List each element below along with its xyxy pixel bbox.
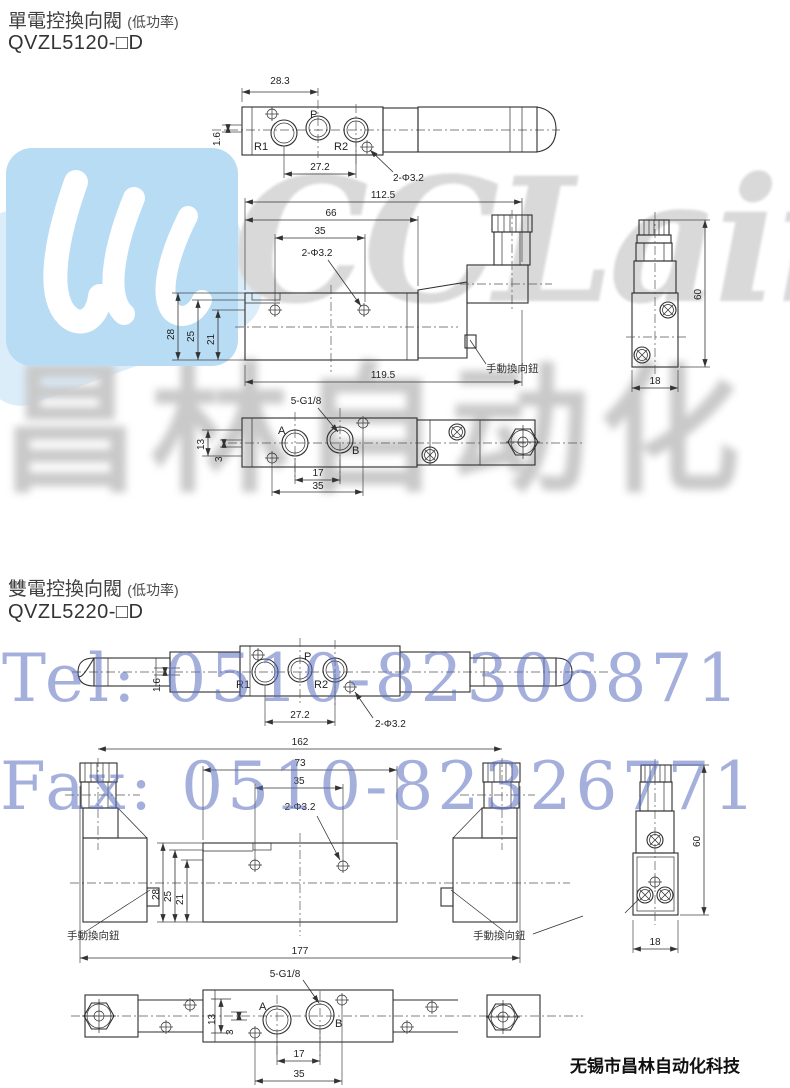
section1-model-number: QVZL5120-□D: [8, 32, 143, 55]
screw-icon: [637, 887, 653, 903]
dim-17: 17: [293, 1049, 305, 1060]
dim-35: 35: [314, 226, 326, 237]
valve2-top-view-drawing: 1.6 27.2 2-Φ3.2 R1 P R2: [68, 630, 623, 735]
dim-35: 35: [293, 1069, 305, 1080]
section1-subtitle: (低功率): [127, 14, 178, 30]
screw-icon: [634, 347, 650, 363]
dim-35: 35: [312, 481, 324, 492]
dim-1-6: 1.6: [152, 678, 163, 692]
dim-25: 25: [186, 330, 197, 342]
section1-title-text: 單電控換向閥: [8, 11, 122, 32]
dim-177: 177: [292, 946, 309, 957]
valve1-top-view-drawing: 28.3 1.6 27.2 2-Φ3.2 R1 P R2: [210, 66, 565, 191]
dim-66: 66: [325, 208, 337, 219]
section2-title-text: 雙電控換向閥: [8, 579, 122, 600]
screw-icon: [660, 302, 676, 318]
valve1-bottom-view-drawing: 5-G1/8 A B 13 3 17 35: [178, 392, 598, 522]
dim-119-5: 119.5: [371, 370, 396, 381]
port-p-label: P: [304, 651, 311, 663]
section2-title: 雙電控換向閥 (低功率): [8, 574, 179, 601]
dim-60: 60: [693, 288, 704, 300]
mount-hole-icon: [265, 107, 279, 121]
screw-icon: [422, 447, 438, 463]
port-r1-label: R1: [254, 141, 268, 153]
screw-icon: [449, 424, 465, 440]
port-r1-label: R1: [236, 679, 250, 691]
section1-title: 單電控換向閥 (低功率): [8, 6, 179, 33]
dim-hole-2xd3-2: 2-Φ3.2: [285, 802, 316, 813]
dim-hole-2xd3-2: 2-Φ3.2: [375, 719, 406, 730]
valve1-side-view-drawing: 60 18: [618, 200, 730, 400]
dim-17: 17: [312, 468, 324, 479]
dim-13: 13: [196, 438, 207, 450]
valve2-front-view-drawing: 162 73 35 2-Φ3.2 28 25 21 177 手動換向鈕 手動換向…: [55, 738, 585, 966]
section2-model-number: QVZL5220-□D: [8, 601, 143, 624]
dim-18: 18: [649, 376, 661, 387]
dim-28: 28: [151, 888, 162, 900]
dim-hole-2xd3-2: 2-Φ3.2: [302, 248, 333, 259]
port-r2-label: R2: [334, 141, 348, 153]
dim-25: 25: [163, 890, 174, 902]
dim-60: 60: [692, 835, 703, 847]
valve2-side-view-drawing: 60 18: [623, 755, 725, 960]
dim-162: 162: [292, 738, 309, 748]
valve2-bottom-view-drawing: 5-G1/8 A B 13 3 17 35: [63, 965, 593, 1088]
port-p-label: P: [310, 109, 317, 121]
dim-1-6: 1.6: [212, 132, 223, 146]
port-a-label: A: [259, 1001, 267, 1013]
dim-21: 21: [206, 333, 217, 345]
catalog-page: { "section1": {"title": "單電控換向閥", "subti…: [0, 0, 790, 1088]
dim-21: 21: [175, 893, 186, 905]
port-r2-label: R2: [314, 679, 328, 691]
dim-35: 35: [293, 776, 305, 787]
thread-label-5-g1-8: 5-G1/8: [291, 396, 322, 407]
hex-fitting-icon: [486, 1000, 520, 1034]
dim-112-5: 112.5: [371, 190, 396, 201]
dim-18: 18: [649, 937, 661, 948]
manual-override-label-left: 手動換向鈕: [67, 929, 120, 942]
manual-override-label: 手動換向鈕: [486, 362, 539, 375]
dim-73: 73: [294, 758, 306, 769]
manual-override-button: [441, 888, 453, 906]
dim-3: 3: [214, 456, 225, 462]
port-b-label: B: [352, 445, 359, 457]
thread-label-5-g1-8: 5-G1/8: [270, 969, 301, 980]
footer-company-name: 无锡市昌林自动化科技: [570, 1052, 740, 1077]
manual-override-label-right: 手動換向鈕: [473, 929, 526, 942]
dim-28: 28: [166, 328, 177, 340]
dim-28-3: 28.3: [270, 76, 290, 87]
dim-3: 3: [225, 1029, 236, 1035]
dim-13: 13: [207, 1013, 218, 1025]
dim-27-2: 27.2: [290, 710, 310, 721]
port-b-label: B: [335, 1018, 342, 1030]
hex-fitting-icon: [82, 999, 116, 1033]
screw-icon: [657, 887, 673, 903]
section2-subtitle: (低功率): [127, 582, 178, 598]
dim-27-2: 27.2: [310, 162, 330, 173]
port-r1-hole: [271, 120, 297, 146]
port-a-label: A: [278, 425, 286, 437]
dim-hole-2xd3-2: 2-Φ3.2: [393, 173, 424, 184]
valve1-front-view-drawing: 112.5 66 35 2-Φ3.2 28 25 21 119.5 手動換向鈕: [160, 190, 580, 390]
